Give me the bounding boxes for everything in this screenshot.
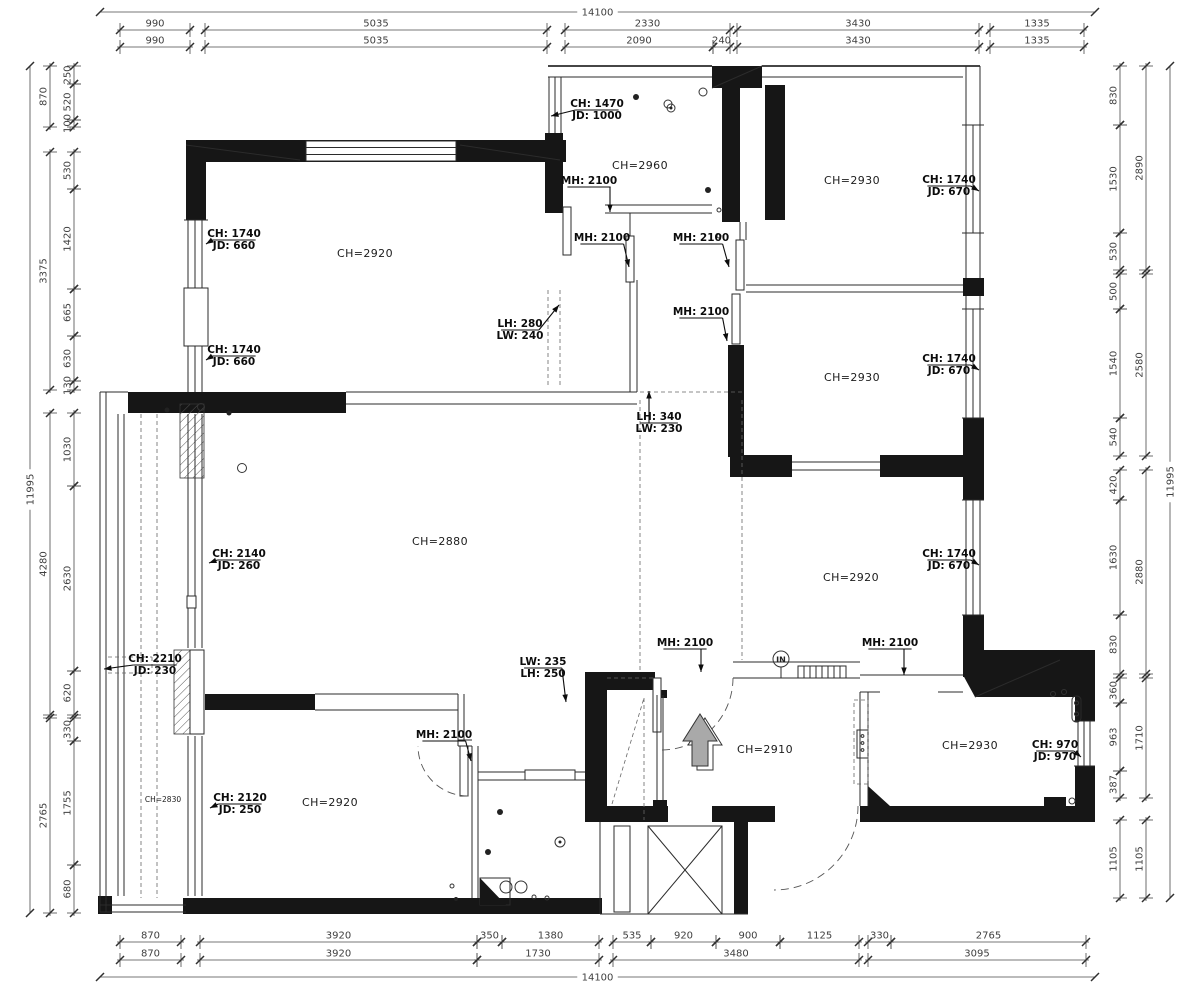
dim-text: 2330 <box>635 19 660 30</box>
wall-segment <box>765 85 785 220</box>
ceiling-dot <box>861 742 864 745</box>
label-line: MH: 2100 <box>673 232 729 244</box>
dim-text: 100 <box>63 114 74 133</box>
room-height-label: CH=2880 <box>412 535 468 548</box>
ceiling-dot <box>1069 798 1075 804</box>
dim-text: 14100 <box>582 8 614 19</box>
dim-text: 387 <box>1109 775 1120 794</box>
dim-text: 1730 <box>525 949 550 960</box>
dim-text: 870 <box>39 87 50 106</box>
window-label: CH: 1740JD: 670 <box>922 548 979 572</box>
room-height-label: CH=2960 <box>612 159 668 172</box>
ceiling-dot <box>559 841 562 844</box>
ceiling-dot <box>497 809 503 815</box>
plan-shape <box>868 786 890 806</box>
label-line: MH: 2100 <box>561 175 617 187</box>
dim-text: 1755 <box>63 790 74 815</box>
dim-text: 665 <box>63 303 74 322</box>
radiator <box>857 730 868 758</box>
ceiling-dot <box>633 94 639 100</box>
wall-segment <box>186 162 206 220</box>
door-label: MH: 2100 <box>862 637 918 675</box>
window-label: CH: 1740JD: 670 <box>922 353 979 377</box>
room-height-label: CH=2910 <box>737 743 793 756</box>
dim-text: 3375 <box>39 258 50 283</box>
label-line: CH: 2140 <box>212 548 266 560</box>
floorplan-page: IN 9905035233034301335990503520902403430… <box>0 0 1200 994</box>
window-label: CH: 2120JD: 250 <box>210 792 267 816</box>
wall-segment <box>722 88 740 222</box>
ceiling-dot <box>227 411 232 416</box>
dim-text: 1105 <box>1109 846 1120 871</box>
wall-line <box>612 698 644 804</box>
dim-text: 1030 <box>63 437 74 462</box>
label-line: CH: 1740 <box>207 344 261 356</box>
dim-text: 3480 <box>723 949 748 960</box>
ceiling-dot <box>861 735 864 738</box>
label-line: JD: 670 <box>927 365 970 377</box>
dim-text: 360 <box>1109 681 1120 700</box>
dim-text: 680 <box>63 879 74 898</box>
dim-text: 1335 <box>1024 19 1049 30</box>
label-line: LH: 340 <box>636 411 681 423</box>
dim-text: 830 <box>1109 635 1120 654</box>
wall-segment <box>963 278 984 296</box>
dim-text: 3430 <box>845 36 870 47</box>
wall-segment <box>730 455 792 477</box>
window-label: CH: 2140JD: 260 <box>209 548 266 572</box>
wall-segment <box>712 806 742 822</box>
wall-segment <box>545 133 563 213</box>
room-height-label: CH=2920 <box>823 571 879 584</box>
leader-arrowhead <box>724 259 729 267</box>
dim-text: 630 <box>63 349 74 368</box>
wall-segment <box>653 800 667 808</box>
door-label: MH: 2100 <box>561 175 617 212</box>
plan-geometry-layer: IN 9905035233034301335990503520902403430… <box>24 5 1177 984</box>
room-height-label: CH=2920 <box>337 247 393 260</box>
dim-text: 1540 <box>1109 351 1120 376</box>
dim-text: 870 <box>141 931 160 942</box>
dim-text: 350 <box>480 931 499 942</box>
ceiling-dot <box>238 464 247 473</box>
dim-text: 990 <box>145 19 164 30</box>
dim-text: 2765 <box>39 803 50 828</box>
label-line: LH: 250 <box>520 668 565 680</box>
label-line: JD: 670 <box>927 560 970 572</box>
label-line: JD: 250 <box>218 804 261 816</box>
label-line: MH: 2100 <box>416 729 472 741</box>
wall-segment <box>306 141 456 161</box>
dim-text: 2765 <box>976 931 1001 942</box>
entry-arrow-icon <box>683 714 722 770</box>
dim-text: 1105 <box>1135 846 1146 871</box>
label-line: MH: 2100 <box>574 232 630 244</box>
window-label: CH: 1740JD: 670 <box>922 174 979 198</box>
room-height-label: CH=2930 <box>942 739 998 752</box>
door-leaf <box>525 770 575 780</box>
window-label: CH: 1740JD: 660 <box>206 228 261 252</box>
fixtures-layer: IN <box>165 88 1082 905</box>
dim-text: 520 <box>63 92 74 111</box>
label-line: CH: 970 <box>1032 739 1078 751</box>
dim-text: 1530 <box>1109 166 1120 191</box>
dim-text: 3095 <box>964 949 989 960</box>
dim-text: 2630 <box>63 566 74 591</box>
ceiling-dot <box>717 208 721 212</box>
dim-text: 11995 <box>1166 466 1177 498</box>
wall-segment <box>205 694 315 710</box>
label-line: MH: 2100 <box>657 637 713 649</box>
ceiling-dot <box>165 408 170 413</box>
label-line: CH: 2210 <box>128 653 182 665</box>
lobby-door-arc <box>774 806 858 890</box>
label-line: JD: 670 <box>927 186 970 198</box>
dim-text: 130 <box>63 376 74 395</box>
label-line: CH: 2120 <box>213 792 267 804</box>
beam-label: LW: 235LH: 250 <box>520 656 568 702</box>
wall-segment <box>1075 766 1095 806</box>
dim-text: 2880 <box>1135 559 1146 584</box>
wall-segment <box>128 392 346 413</box>
dim-text: 990 <box>145 36 164 47</box>
dim-text: 530 <box>63 161 74 180</box>
label-line: JD: 660 <box>212 356 255 368</box>
dim-text: 920 <box>674 931 693 942</box>
leader-arrowhead <box>901 667 906 675</box>
dim-text: 620 <box>63 683 74 702</box>
dim-text: 1710 <box>1135 725 1146 750</box>
door-label: MH: 2100 <box>574 232 630 267</box>
label-line: CH: 1470 <box>570 98 624 110</box>
dim-text: 5035 <box>363 19 388 30</box>
dim-text: 870 <box>141 949 160 960</box>
beam-label: LH: 280LW: 240 <box>497 305 559 342</box>
wall-box-fixture <box>1044 797 1066 806</box>
dim-text: 240 <box>712 36 731 47</box>
ceiling-dot <box>699 88 707 96</box>
leader-arrowhead <box>562 694 567 702</box>
wall-segment <box>585 672 655 690</box>
dim-text: 500 <box>1109 282 1120 301</box>
door-label: MH: 2100 <box>657 637 713 672</box>
label-line: MH: 2100 <box>862 637 918 649</box>
dim-text: 530 <box>1109 242 1120 261</box>
window-hardware <box>187 596 196 608</box>
dim-text: 4280 <box>39 551 50 576</box>
label-line: LW: 235 <box>520 656 567 668</box>
label-line: JD: 660 <box>212 240 255 252</box>
dim-text: 963 <box>1109 727 1120 746</box>
leader-arrowhead <box>607 204 612 212</box>
dim-text: 1420 <box>63 226 74 251</box>
beam-label: LH: 340LW: 230 <box>636 391 683 435</box>
wall-segment <box>734 822 748 914</box>
ceiling-dot <box>670 107 673 110</box>
door-leaf <box>563 207 571 255</box>
elevator-shaft <box>600 822 748 914</box>
label-line: LH: 280 <box>497 318 542 330</box>
dim-text: 1380 <box>538 931 563 942</box>
ceiling-dot <box>454 897 458 901</box>
door-label: MH: 2100 <box>673 232 730 267</box>
leader-arrowhead <box>723 333 728 341</box>
leader-arrowhead <box>104 665 112 670</box>
ceiling-dot <box>450 884 454 888</box>
wall-segment <box>183 898 483 914</box>
dim-text: 535 <box>622 931 641 942</box>
dim-text: 250 <box>63 65 74 84</box>
dim-text: 330 <box>870 931 889 942</box>
wall-segment <box>600 806 668 822</box>
dim-text: 1335 <box>1024 36 1049 47</box>
entry-symbol-label: IN <box>776 656 786 665</box>
door-label: MH: 2100 <box>673 306 729 341</box>
dim-text: 2890 <box>1135 155 1146 180</box>
floorplan-canvas: IN 9905035233034301335990503520902403430… <box>0 0 1200 994</box>
ceiling-dot <box>705 187 711 193</box>
label-line: CH: 1740 <box>922 174 976 186</box>
wall-segment <box>963 418 984 500</box>
dim-text: 2580 <box>1135 352 1146 377</box>
ceiling-dot <box>861 749 864 752</box>
room-height-label: CH=2930 <box>824 371 880 384</box>
wall-segment <box>1075 697 1095 721</box>
window-label: CH: 1470JD: 1000 <box>551 98 624 122</box>
ceiling-dot <box>515 881 527 893</box>
door-leaf <box>736 240 744 290</box>
label-line: LW: 230 <box>636 423 683 435</box>
shoe-cabinet <box>798 666 846 678</box>
dim-text: 1630 <box>1109 545 1120 570</box>
dim-text: 1125 <box>807 931 832 942</box>
label-line: JD: 260 <box>217 560 260 572</box>
dim-text: 11995 <box>26 474 37 506</box>
dim-text: 540 <box>1109 427 1120 446</box>
label-line: JD: 1000 <box>571 110 622 122</box>
leader-arrowhead <box>698 664 703 672</box>
window-label: CH: 970JD: 970 <box>1032 739 1081 763</box>
label-line: MH: 2100 <box>673 306 729 318</box>
door-leaf <box>732 294 740 344</box>
dim-text: 2090 <box>626 36 651 47</box>
hatch-column <box>180 404 204 478</box>
dim-text: 3430 <box>845 19 870 30</box>
wall-segment <box>860 806 1095 822</box>
dim-text: 3920 <box>326 949 351 960</box>
columns-layer <box>174 404 204 734</box>
dim-text: 900 <box>738 931 757 942</box>
wall-segment <box>184 288 208 346</box>
wall-segment <box>614 826 630 912</box>
label-line: JD: 230 <box>133 665 176 677</box>
room-height-label: CH=2830 <box>145 795 181 804</box>
dim-text: 3920 <box>326 931 351 942</box>
room-height-label: CH=2920 <box>302 796 358 809</box>
wall-segment <box>880 455 966 477</box>
entry-in-symbol: IN <box>773 651 789 678</box>
dim-text: 830 <box>1109 86 1120 105</box>
label-line: JD: 970 <box>1033 751 1076 763</box>
label-line: CH: 1740 <box>207 228 261 240</box>
wall-segment <box>740 806 775 822</box>
wall-segment <box>585 690 607 822</box>
door-leaf <box>460 746 468 796</box>
label-line: LW: 240 <box>497 330 544 342</box>
dim-text: 5035 <box>363 36 388 47</box>
wall-segment <box>190 650 204 734</box>
dim-text: 420 <box>1109 475 1120 494</box>
ceiling-dot <box>485 849 491 855</box>
window-label: CH: 1740JD: 660 <box>206 344 261 368</box>
dim-text: 330 <box>63 720 74 739</box>
room-height-label: CH=2930 <box>824 174 880 187</box>
dim-text: 14100 <box>582 973 614 984</box>
label-line: CH: 1740 <box>922 548 976 560</box>
label-line: CH: 1740 <box>922 353 976 365</box>
